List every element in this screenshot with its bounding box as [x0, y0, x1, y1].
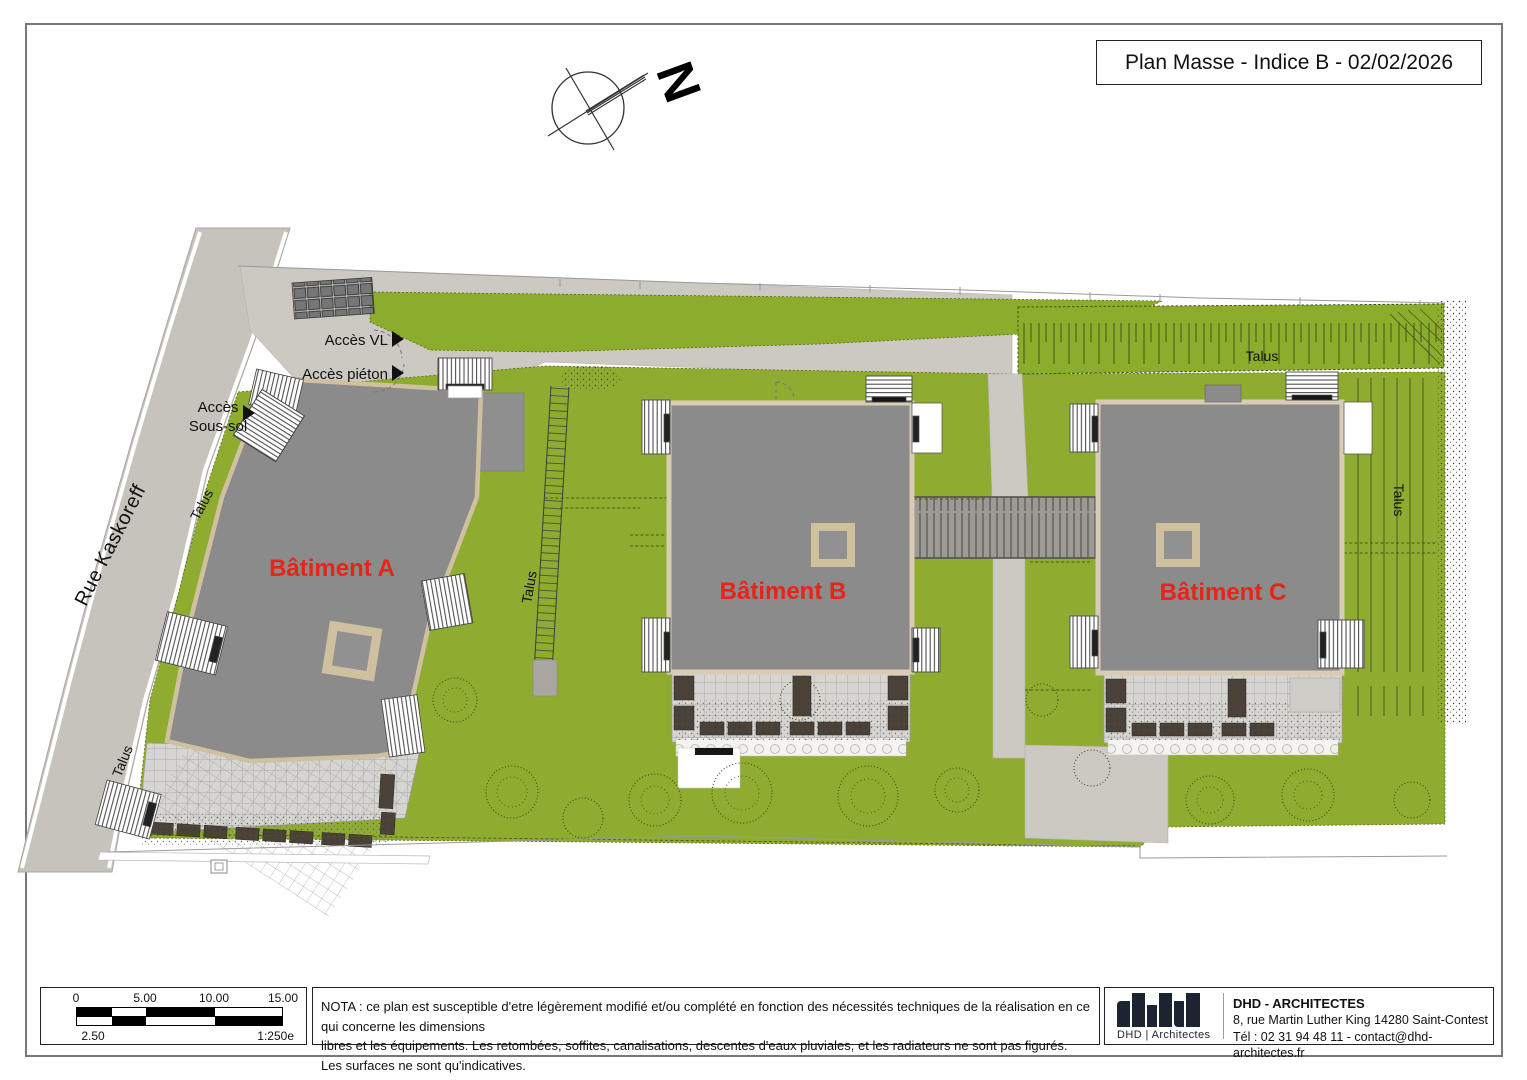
building-b: Bâtiment B: [669, 403, 912, 672]
building-a-label: Bâtiment A: [269, 555, 395, 582]
firm-name: DHD - ARCHITECTES: [1233, 995, 1493, 1012]
acces-sous-sol-label-1: Accès: [198, 399, 239, 416]
acces-vl-label: Accès VL: [325, 332, 388, 349]
north-compass: N: [548, 55, 712, 150]
talus-band-top-right: [1018, 304, 1444, 374]
firm-contact: Tél : 02 31 94 48 11 - contact@dhd-archi…: [1233, 1029, 1493, 1062]
drawing-sheet: Rue Kaskoreff: [0, 0, 1527, 1080]
north-label: N: [644, 55, 711, 110]
firm-address: 8, rue Martin Luther King 14280 Saint-Co…: [1233, 1012, 1493, 1029]
nota-block: NOTA : ce plan est susceptible d'etre lé…: [312, 987, 1100, 1045]
building-c: Bâtiment C: [1098, 402, 1342, 673]
scale-tick-0: 0: [73, 991, 80, 1005]
talus-label-right: Talus: [1391, 484, 1407, 517]
firm-divider: [1223, 993, 1224, 1039]
scale-tick-5: 5.00: [133, 991, 156, 1005]
pedestrian-gate-opening: [448, 386, 482, 398]
nota-line-2: libres et les équipements. Les retombées…: [321, 1036, 1091, 1075]
hedge-top-of-talus: [560, 365, 620, 391]
title-block: Plan Masse - Indice B - 02/02/2026: [1096, 40, 1482, 85]
talus-label-top-right: Talus: [1246, 348, 1279, 364]
acces-sous-sol-label-2: Sous-sol: [189, 418, 247, 435]
site-plan-drawing: Rue Kaskoreff: [0, 0, 1527, 1080]
hedge-right-boundary: [1436, 300, 1466, 724]
acces-pieton-label: Accès piéton: [302, 366, 388, 383]
scale-bar: 0 5.00 10.00 15.00 2.50 1:250e: [40, 987, 307, 1045]
building-c-label: Bâtiment C: [1160, 579, 1287, 606]
scale-tick-2-5: 2.50: [81, 1029, 104, 1043]
firm-block: DHD | Architectes DHD - ARCHITECTES 8, r…: [1104, 987, 1494, 1045]
scale-bar-row-bottom: [76, 1016, 283, 1026]
dhd-logo-caption: DHD | Architectes: [1117, 1029, 1217, 1041]
dhd-logo-icon: DHD | Architectes: [1117, 993, 1217, 1041]
scale-tick-15: 15.00: [268, 991, 298, 1005]
bin-storage: [292, 277, 374, 318]
nota-line-1: NOTA : ce plan est susceptible d'etre lé…: [321, 997, 1091, 1036]
boardwalk: [910, 497, 1100, 558]
scale-ratio: 1:250e: [257, 1029, 294, 1043]
plan-title: Plan Masse - Indice B - 02/02/2026: [1125, 51, 1453, 75]
terrace-building-c: [1104, 675, 1342, 755]
scale-tick-10: 10.00: [199, 991, 229, 1005]
building-b-label: Bâtiment B: [720, 578, 847, 605]
